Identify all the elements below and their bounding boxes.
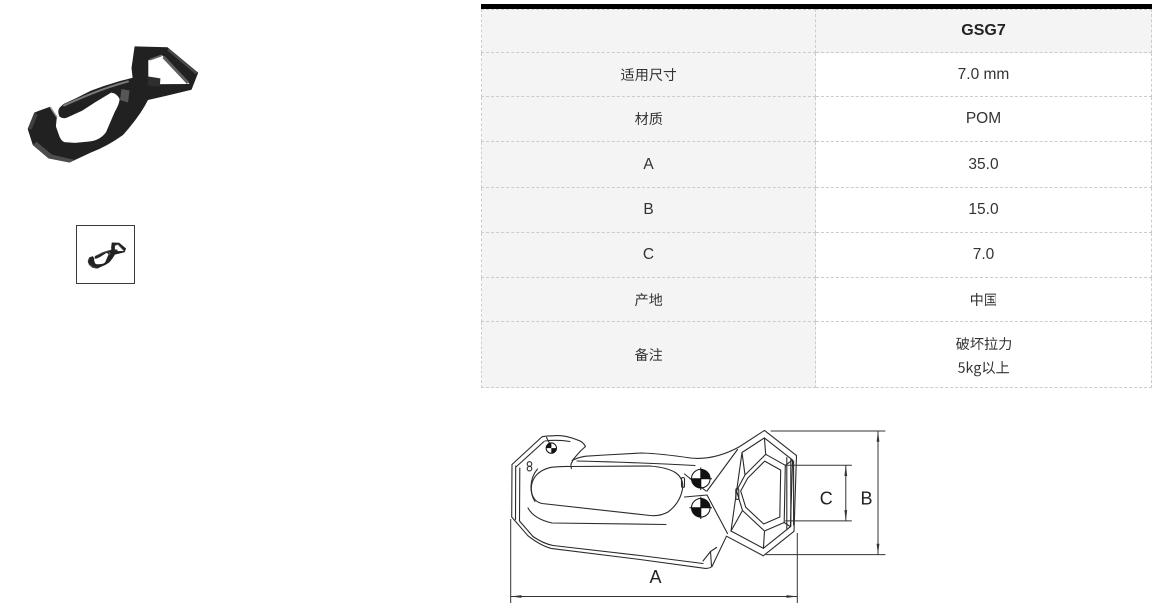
svg-text:B: B xyxy=(860,489,872,509)
svg-text:C: C xyxy=(820,489,833,509)
svg-text:A: A xyxy=(649,567,661,587)
